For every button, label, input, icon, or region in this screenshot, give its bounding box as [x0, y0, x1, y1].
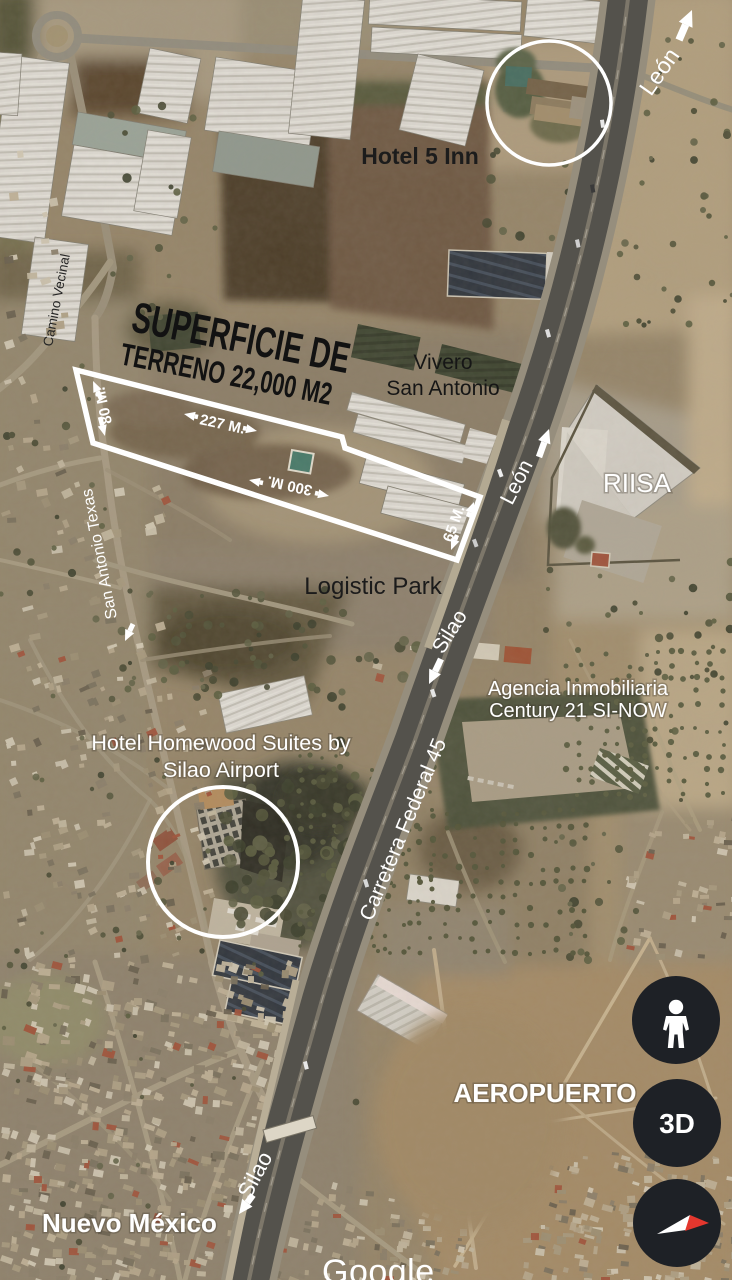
svg-text:Silao Airport: Silao Airport	[163, 758, 279, 782]
svg-text:3D: 3D	[659, 1108, 695, 1139]
svg-text:Nuevo México: Nuevo México	[42, 1208, 217, 1238]
svg-text:Vivero: Vivero	[413, 351, 472, 374]
svg-text:Logistic Park: Logistic Park	[304, 573, 442, 600]
svg-text:AEROPUERTO: AEROPUERTO	[454, 1078, 637, 1108]
svg-text:Century 21 SI-NOW: Century 21 SI-NOW	[489, 700, 667, 722]
svg-text:Agencia Inmobiliaria: Agencia Inmobiliaria	[488, 678, 669, 700]
svg-text:Google: Google	[322, 1253, 435, 1280]
svg-text:San Antonio: San Antonio	[386, 377, 499, 400]
svg-text:RIISA: RIISA	[603, 468, 672, 498]
svg-text:Hotel Homewood Suites by: Hotel Homewood Suites by	[91, 731, 351, 755]
svg-text:Hotel 5 Inn: Hotel 5 Inn	[361, 143, 479, 169]
